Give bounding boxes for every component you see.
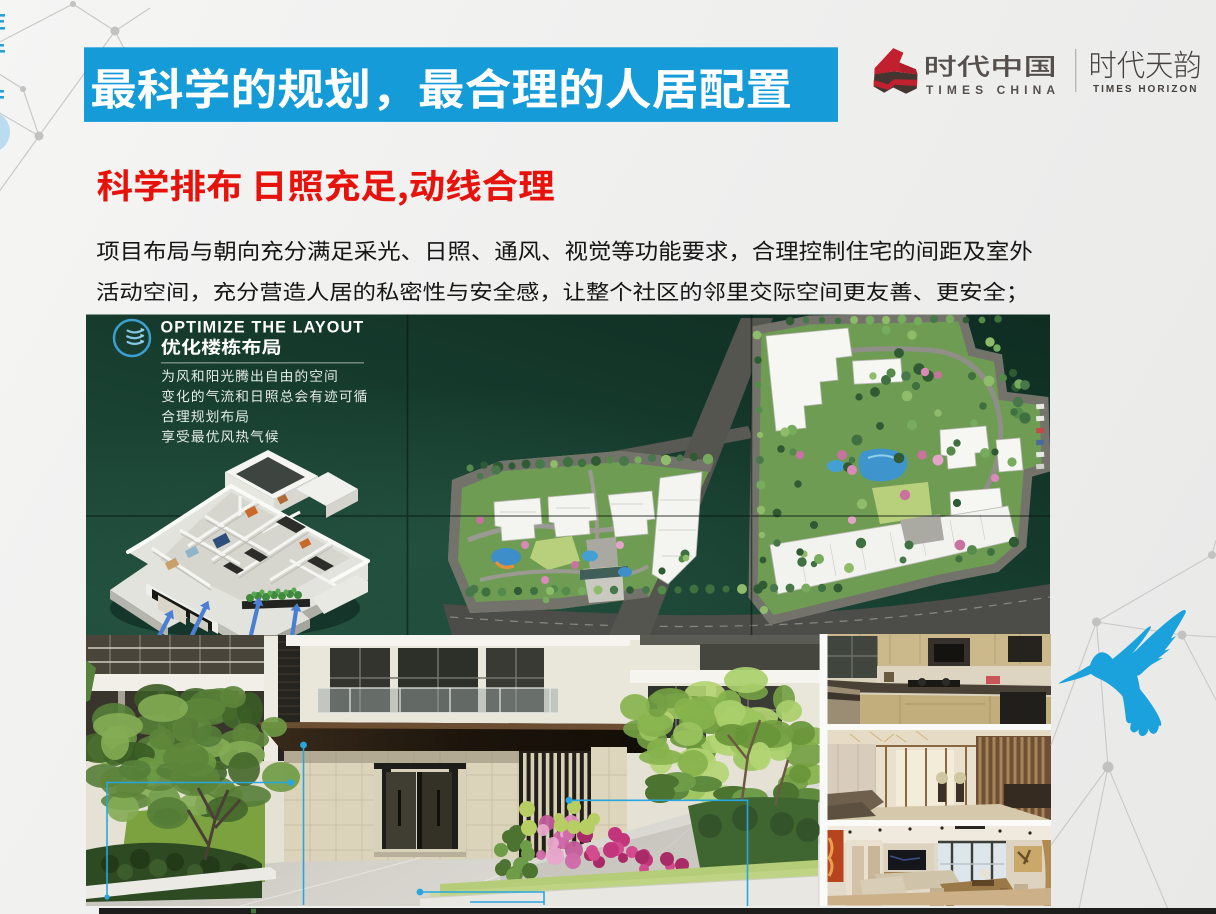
svg-text:OPTIMIZE THE LAYOUT: OPTIMIZE THE LAYOUT (161, 318, 365, 336)
